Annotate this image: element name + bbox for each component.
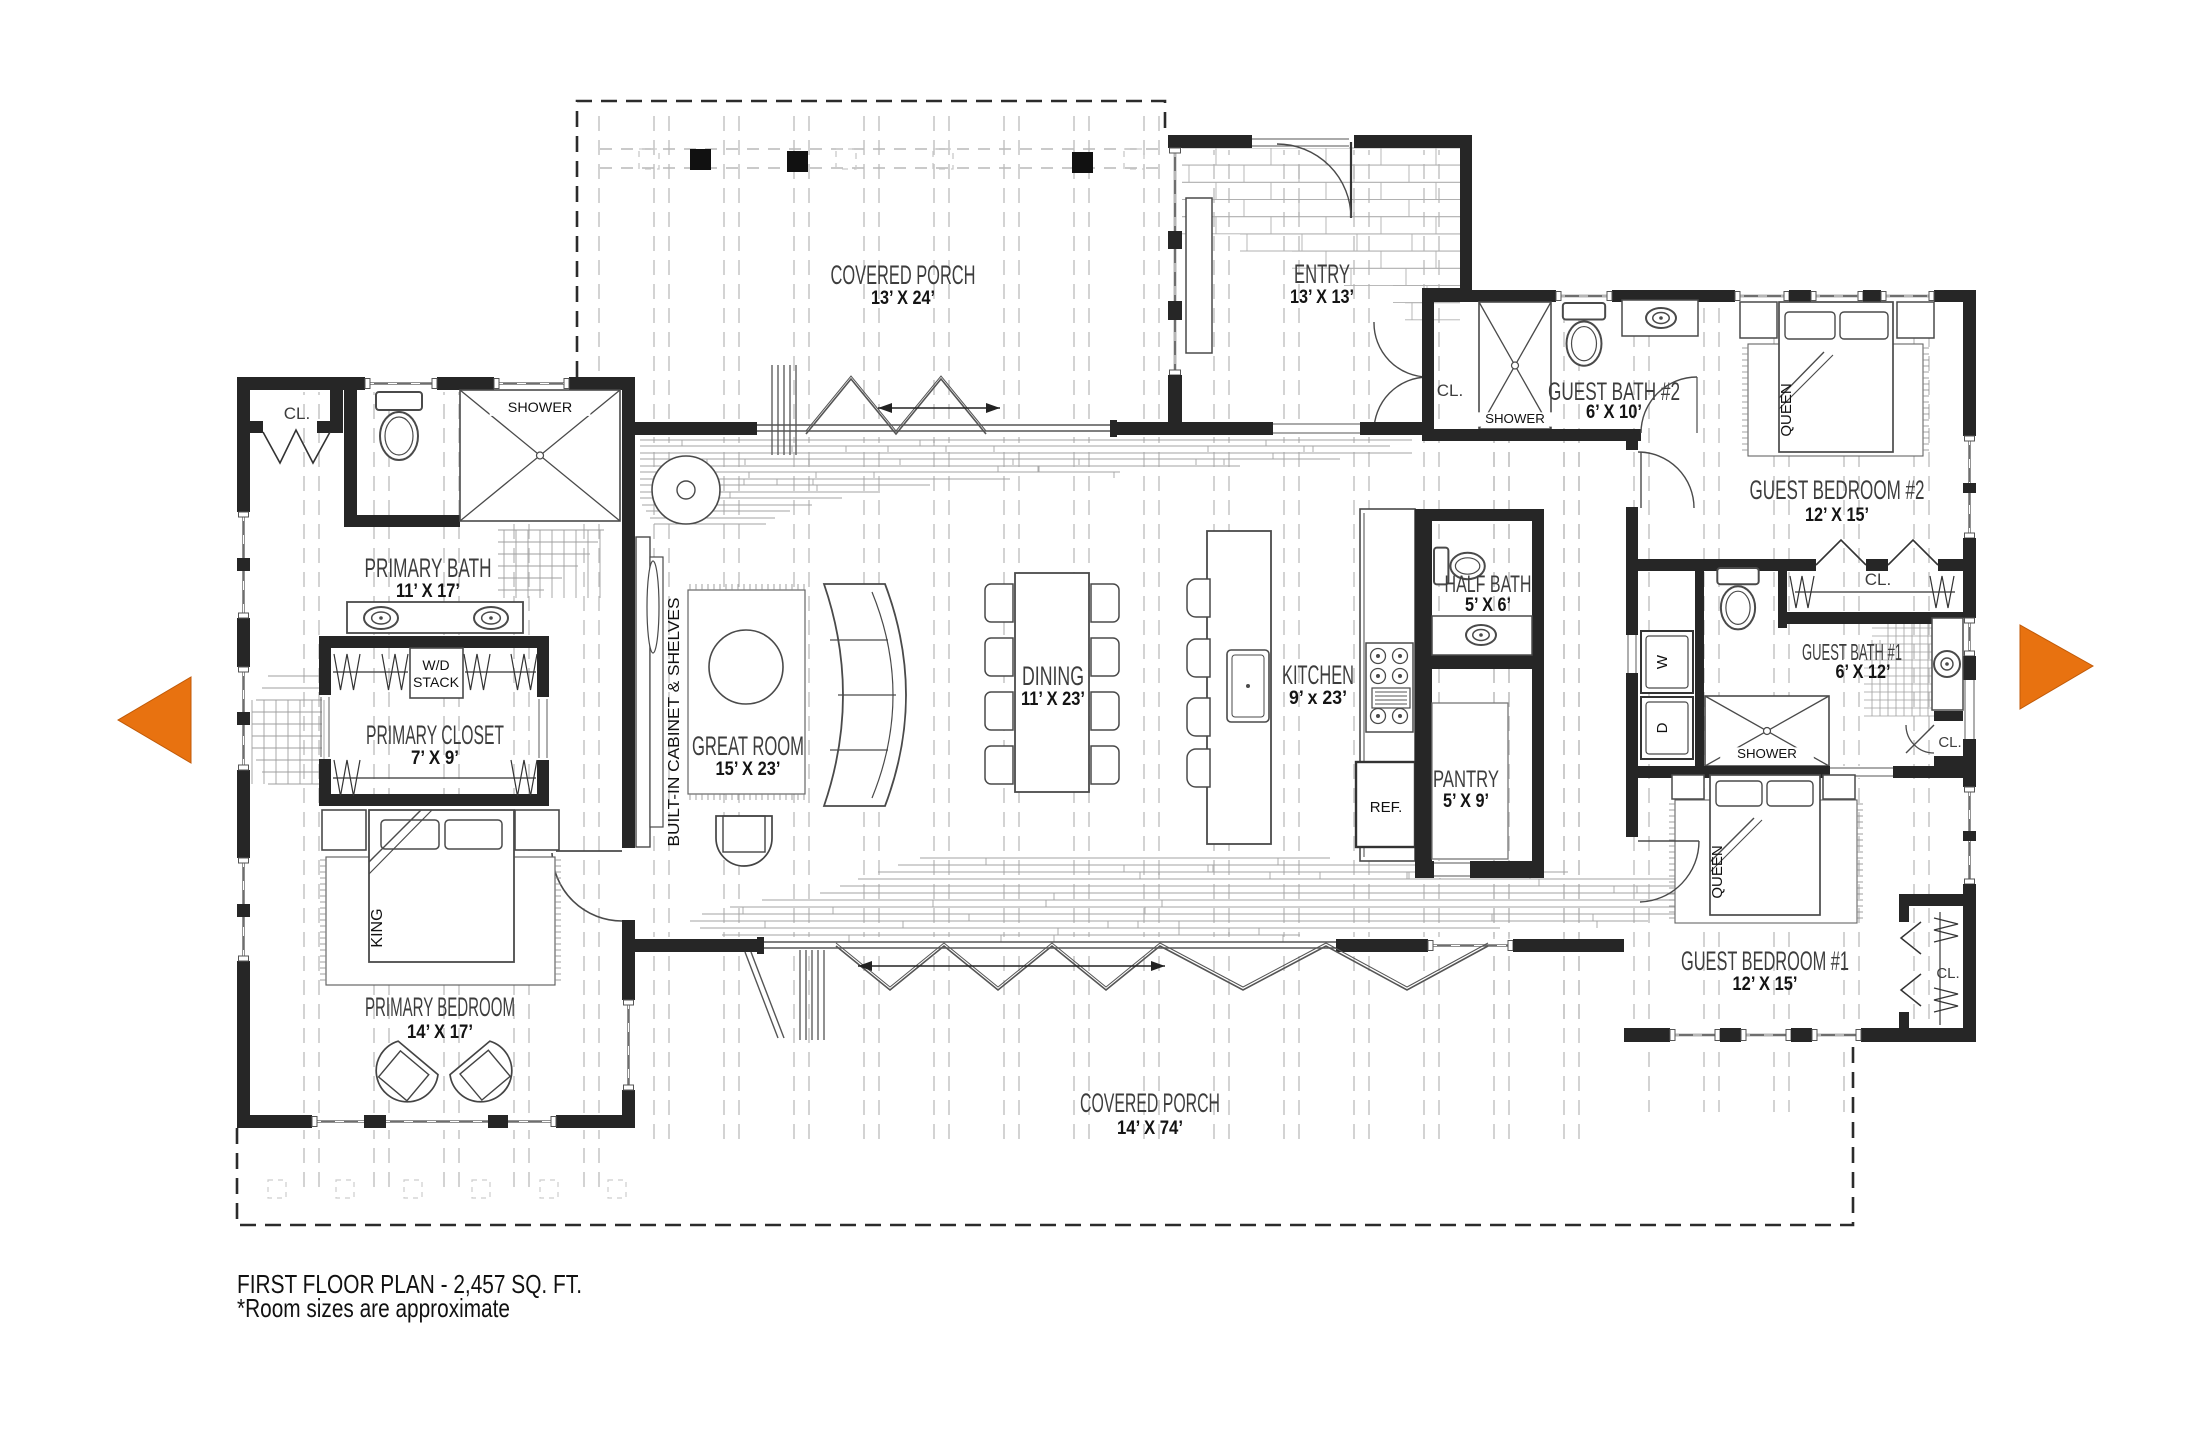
svg-text:13’ X 24’: 13’ X 24’: [871, 287, 935, 309]
svg-text:PANTRY: PANTRY: [1433, 766, 1499, 793]
svg-text:CL.: CL.: [284, 404, 310, 423]
svg-text:12’ X 15’: 12’ X 15’: [1733, 973, 1798, 995]
svg-text:6’ X 10’: 6’ X 10’: [1586, 401, 1642, 423]
svg-text:14’ X 17’: 14’ X 17’: [407, 1021, 473, 1043]
svg-text:STACK: STACK: [413, 674, 460, 690]
svg-text:KITCHEN: KITCHEN: [1282, 660, 1354, 690]
svg-text:KING: KING: [369, 908, 386, 947]
svg-text:QUEEN: QUEEN: [1709, 845, 1726, 898]
svg-text:CL.: CL.: [1437, 381, 1463, 400]
svg-text:12’ X 15’: 12’ X 15’: [1805, 504, 1869, 526]
svg-text:QUEEN: QUEEN: [1778, 383, 1795, 436]
svg-text:11’ X 23’: 11’ X 23’: [1021, 688, 1085, 710]
svg-text:CL.: CL.: [1938, 734, 1961, 751]
svg-text:GREAT ROOM: GREAT ROOM: [692, 731, 804, 761]
svg-text:5’ X 9’: 5’ X 9’: [1443, 790, 1489, 812]
svg-text:COVERED PORCH: COVERED PORCH: [1080, 1088, 1220, 1118]
svg-text:CL.: CL.: [1865, 570, 1891, 589]
svg-text:SHOWER: SHOWER: [1737, 746, 1797, 761]
svg-text:GUEST BEDROOM #1: GUEST BEDROOM #1: [1681, 946, 1849, 976]
svg-text:W: W: [1654, 654, 1671, 669]
svg-text:14’ X 74’: 14’ X 74’: [1117, 1117, 1183, 1139]
svg-text:COVERED PORCH: COVERED PORCH: [831, 260, 976, 290]
svg-text:7’ X 9’: 7’ X 9’: [411, 747, 459, 769]
svg-text:DINING: DINING: [1022, 661, 1084, 691]
svg-text:*Room sizes are approximate: *Room sizes are approximate: [237, 1293, 510, 1323]
svg-text:PRIMARY BEDROOM: PRIMARY BEDROOM: [365, 992, 515, 1022]
svg-text:5’ X 6’: 5’ X 6’: [1465, 594, 1511, 616]
svg-text:CL.: CL.: [1936, 965, 1959, 982]
svg-text:15’ X 23’: 15’ X 23’: [716, 758, 781, 780]
svg-text:6’ X 12’: 6’ X 12’: [1836, 661, 1891, 683]
svg-text:BUILT-IN CABINET & SHELVES: BUILT-IN CABINET & SHELVES: [666, 598, 683, 847]
svg-text:13’ X 13’: 13’ X 13’: [1290, 286, 1354, 308]
svg-text:GUEST BEDROOM #2: GUEST BEDROOM #2: [1750, 475, 1925, 505]
svg-text:REF.: REF.: [1370, 799, 1403, 816]
svg-text:ENTRY: ENTRY: [1294, 259, 1350, 289]
svg-text:PRIMARY BATH: PRIMARY BATH: [365, 553, 492, 583]
svg-text:SHOWER: SHOWER: [508, 399, 572, 415]
svg-text:D: D: [1654, 722, 1671, 733]
svg-text:PRIMARY CLOSET: PRIMARY CLOSET: [366, 720, 504, 750]
svg-text:W/D: W/D: [422, 657, 449, 673]
svg-text:SHOWER: SHOWER: [1485, 411, 1545, 426]
svg-text:11’ X 17’: 11’ X 17’: [396, 580, 460, 602]
svg-text:9’ x 23’: 9’ x 23’: [1289, 687, 1347, 709]
